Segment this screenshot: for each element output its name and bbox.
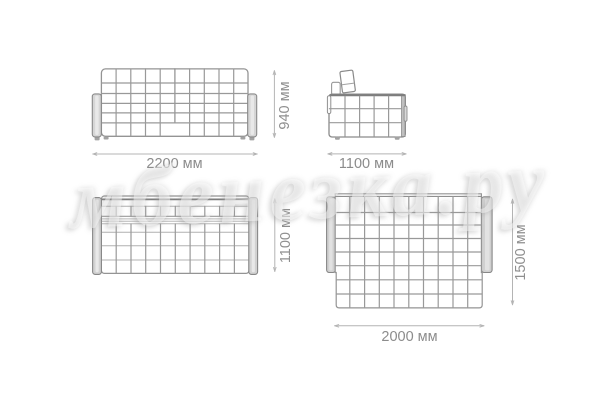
svg-text:940 мм: 940 мм	[277, 81, 293, 129]
svg-text:2000 мм: 2000 мм	[381, 329, 437, 345]
svg-text:1500 мм: 1500 мм	[513, 224, 529, 280]
